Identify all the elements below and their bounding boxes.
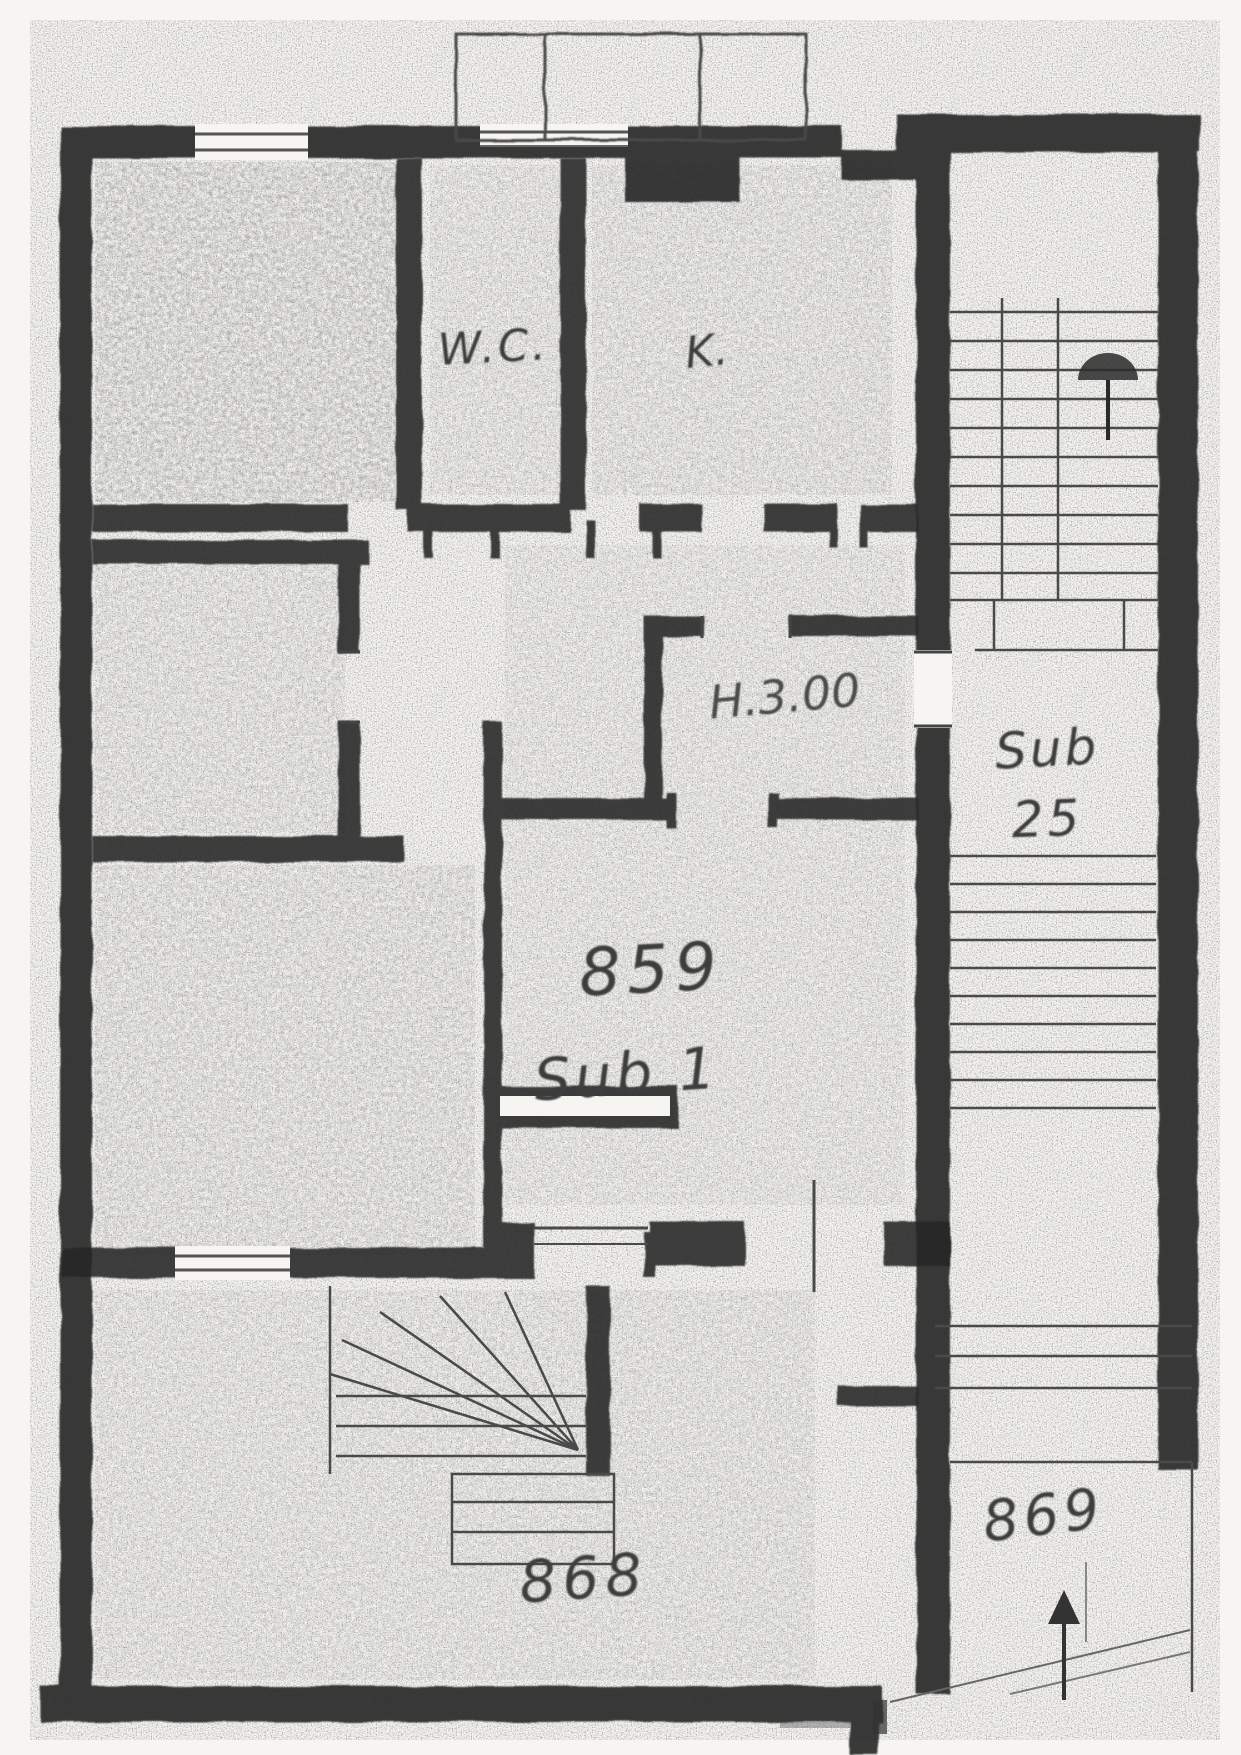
- floor-plan-drawing: W.C. K. H.3.00 859 Sub 1 Sub 25 868 869: [0, 0, 1241, 1755]
- label-wc: W.C.: [437, 319, 550, 376]
- label-stairwell-25: 25: [1011, 789, 1085, 849]
- label-parcel-868: 868: [517, 1540, 650, 1617]
- label-stairwell-sub: Sub: [994, 717, 1101, 780]
- scan-noise-layer: [30, 20, 1220, 1740]
- label-kitchen: K.: [683, 324, 731, 379]
- label-parcel-859-sub1: Sub 1: [532, 1034, 722, 1115]
- label-parcel-859: 859: [577, 927, 725, 1011]
- scanned-floor-plan-page: W.C. K. H.3.00 859 Sub 1 Sub 25 868 869: [0, 0, 1241, 1755]
